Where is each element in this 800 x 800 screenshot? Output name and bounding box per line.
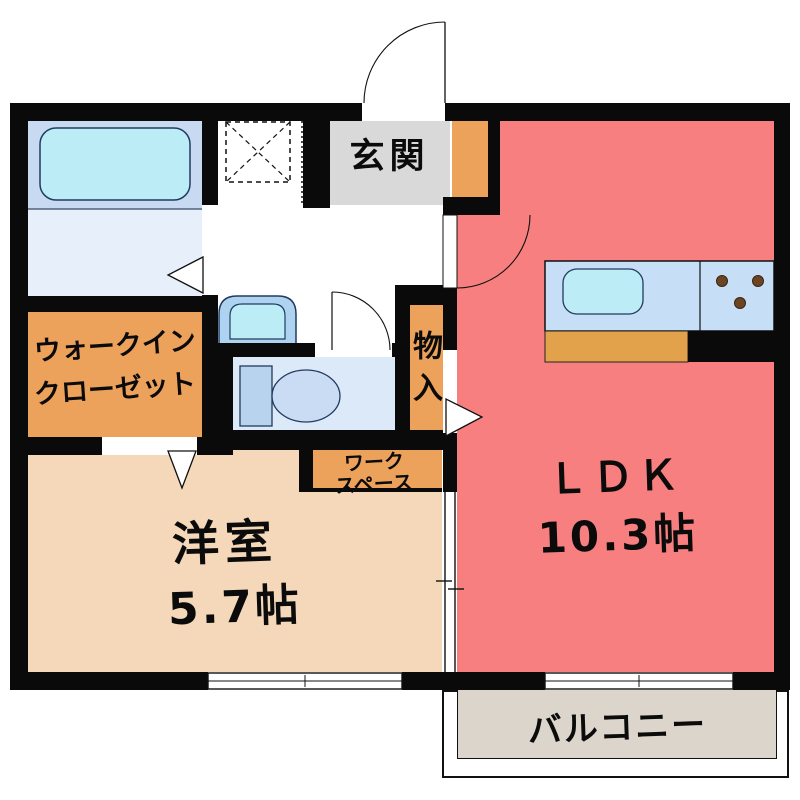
- ldk-door: [443, 215, 530, 288]
- storage-door: [443, 350, 482, 436]
- western-room-label: 洋室: [124, 517, 326, 571]
- kitchen-counter: [545, 261, 774, 362]
- washing-machine-space: [226, 122, 290, 182]
- toilet: [240, 366, 340, 426]
- ldk-label: ＬＤＫ: [504, 453, 725, 502]
- toilet-door: [315, 292, 392, 357]
- ldk-area: 10.3帖: [507, 511, 728, 561]
- western-room-area: 5.7帖: [114, 582, 355, 634]
- window-western: [208, 673, 402, 689]
- kitchen-cabinet: [545, 331, 688, 362]
- bathroom-door: [168, 205, 218, 295]
- floor-plan: 玄関 ウォークイン クローゼット 物入 ワーク スペース 洋室 5.7帖 ＬＤＫ…: [0, 0, 800, 800]
- balcony-label: バルコニー: [489, 707, 745, 750]
- bathtub: [28, 128, 202, 209]
- entrance-door: [362, 22, 445, 121]
- kitchen-end-wall: [688, 331, 774, 362]
- storage-label: 物入: [402, 310, 446, 434]
- sliding-partition: [436, 492, 464, 672]
- washbasin: [219, 296, 296, 344]
- kitchen-sink: [563, 269, 643, 314]
- genkan-label: 玄関: [329, 140, 450, 175]
- wic-door: [102, 437, 197, 488]
- window-ldk-balcony: [545, 673, 733, 689]
